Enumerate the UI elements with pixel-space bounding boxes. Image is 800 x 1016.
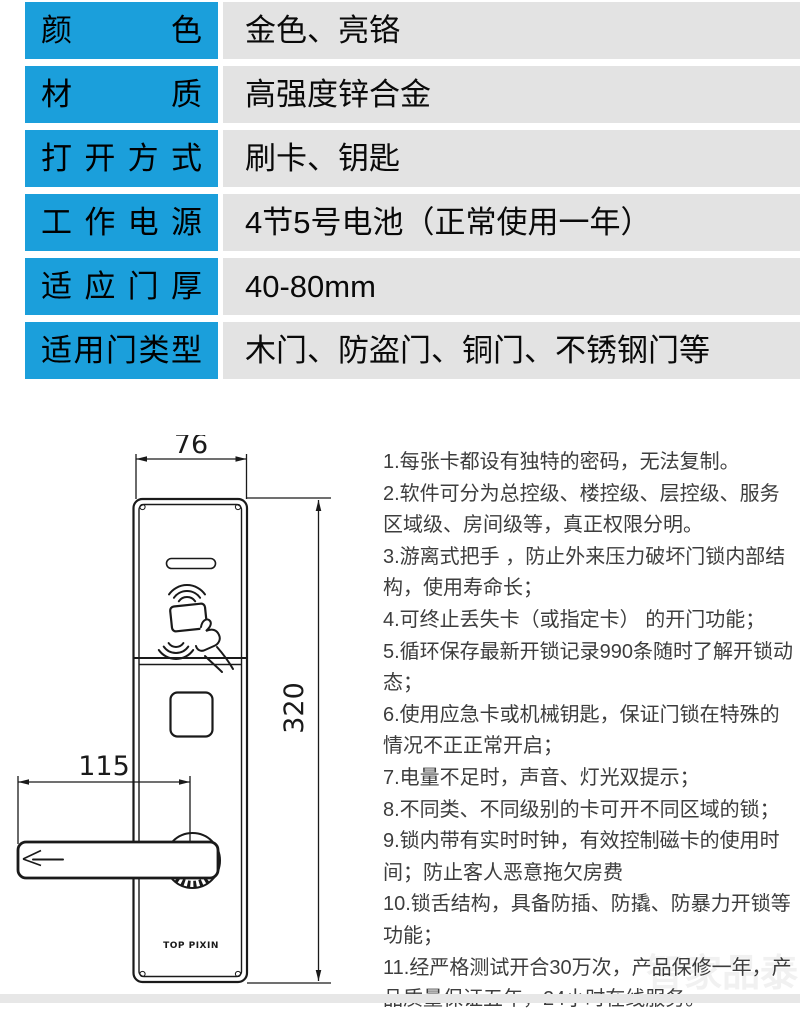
feature-item-8: 8.不同类、不同级别的卡可开不同区域的锁； <box>383 795 797 827</box>
feature-item-6: 6.使用应急卡或机械钥匙，保证门锁在特殊的情况不正正常开启； <box>383 700 797 763</box>
feature-item-3: 3.游离式把手 ，防止外来压力破坏门锁内部结构，使用寿命长； <box>383 542 797 605</box>
spec-row-open-method: 打开方式 刷卡、钥匙 <box>0 130 800 187</box>
spec-label-power: 工作电源 <box>25 194 218 251</box>
spec-row-power: 工作电源 4节5号电池（正常使用一年） <box>0 194 800 251</box>
height-dimension: 320 <box>247 498 331 983</box>
handle-dim-label: 115 <box>78 751 130 782</box>
spec-value-door-type: 木门、防盗门、铜门、不锈钢门等 <box>223 322 800 379</box>
feature-item-10: 10.锁舌结构，具备防插、防撬、防暴力开锁等功能； <box>383 889 797 952</box>
door-handle <box>18 842 218 878</box>
feature-item-1: 1.每张卡都设有独特的密码，无法复制。 <box>383 447 797 479</box>
feature-item-7: 7.电量不足时，声音、灯光双提示； <box>383 763 797 795</box>
lock-plate <box>134 499 248 982</box>
spec-row-door-thickness: 适应门厚 40-80mm <box>0 258 800 315</box>
spec-label-material: 材质 <box>25 66 218 123</box>
feature-item-4: 4.可终止丢失卡（或指定卡） 的开门功能； <box>383 605 797 637</box>
spec-label-door-thickness: 适应门厚 <box>25 258 218 315</box>
spec-value-power: 4节5号电池（正常使用一年） <box>223 194 800 251</box>
lock-technical-drawing: 76 320 1 <box>0 435 345 1003</box>
spec-value-color: 金色、亮铬 <box>223 2 800 59</box>
spec-label-door-type: 适用门类型 <box>25 322 218 379</box>
spec-row-material: 材质 高强度锌合金 <box>0 66 800 123</box>
spec-value-material: 高强度锌合金 <box>223 66 800 123</box>
width-dim-label: 76 <box>174 435 208 460</box>
bottom-strip <box>0 994 800 1003</box>
spec-value-door-thickness: 40-80mm <box>223 258 800 315</box>
width-dimension: 76 <box>136 435 247 499</box>
feature-list: 1.每张卡都设有独特的密码，无法复制。 2.软件可分为总控级、楼控级、层控级、服… <box>383 447 797 1016</box>
spec-row-door-type: 适用门类型 木门、防盗门、铜门、不锈钢门等 <box>0 322 800 379</box>
watermark: 智家品泰 <box>646 948 800 1000</box>
feature-item-5: 5.循环保存最新开锁记录990条随时了解开锁动态； <box>383 637 797 700</box>
spec-label-open-method: 打开方式 <box>25 130 218 187</box>
spec-value-open-method: 刷卡、钥匙 <box>223 130 800 187</box>
feature-item-2: 2.软件可分为总控级、楼控级、层控级、服务区域级、房间级等，真正权限分明。 <box>383 479 797 542</box>
spec-row-color: 颜色 金色、亮铬 <box>0 2 800 59</box>
spec-label-color: 颜色 <box>25 2 218 59</box>
spec-table: 颜色 金色、亮铬 材质 高强度锌合金 打开方式 刷卡、钥匙 工作电源 4节5号电… <box>0 0 800 386</box>
feature-item-9: 9.锁内带有实时时钟，有效控制磁卡的使用时间；防止客人恶意拖欠房费 <box>383 826 797 889</box>
brand-text: TOP PIXIN <box>163 941 219 951</box>
height-dim-label: 320 <box>279 682 310 734</box>
